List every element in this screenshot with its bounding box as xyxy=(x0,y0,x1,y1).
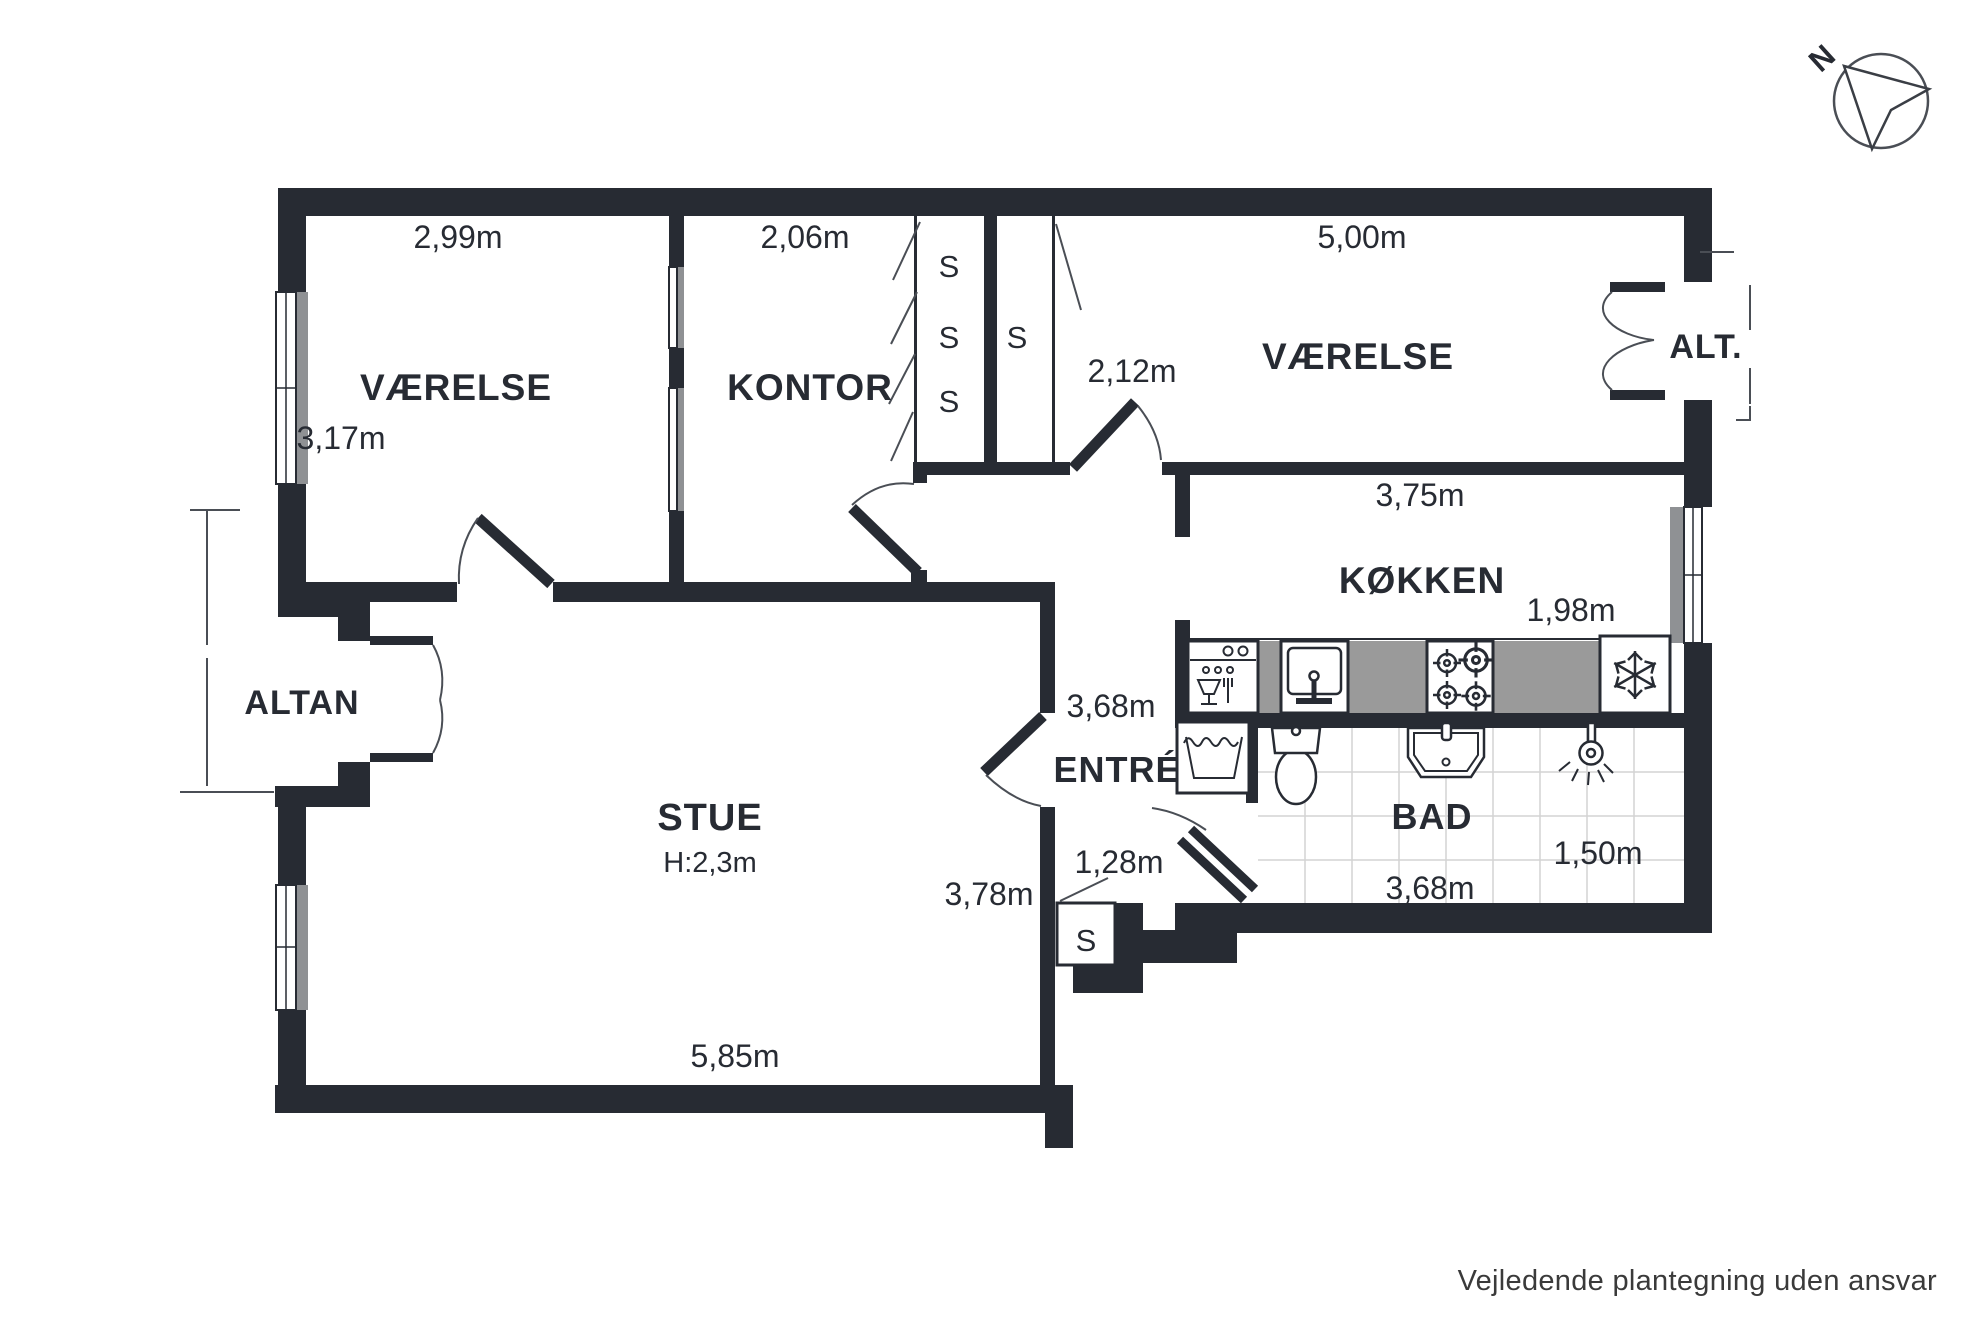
sink-icon xyxy=(1281,641,1348,713)
closet-s-2: S xyxy=(939,320,960,355)
washing-machine-icon xyxy=(1177,722,1249,793)
door-bad xyxy=(1152,808,1255,900)
closet-s-entre: S xyxy=(1076,923,1097,958)
glass-partition-kontor xyxy=(669,267,684,511)
dim-vaerelse-nw-depth: 3,17m xyxy=(297,420,386,456)
dim-koekken-depth: 1,98m xyxy=(1527,592,1616,628)
dim-bad-width: 3,68m xyxy=(1386,870,1475,906)
window-koekken xyxy=(1670,507,1702,643)
dim-stue-depth: 3,78m xyxy=(945,876,1034,912)
room-label-vaerelse-ne: VÆRELSE xyxy=(1262,336,1454,377)
dishwasher-icon xyxy=(1188,641,1258,713)
closet-s-1: S xyxy=(939,249,960,284)
closet-s-3: S xyxy=(939,384,960,419)
door-vaerelse-nw xyxy=(459,518,551,584)
disclaimer-text: Vejledende plantegning uden ansvar xyxy=(1458,1265,1937,1297)
door-vaerelse-ne xyxy=(1073,402,1161,468)
room-label-kontor: KONTOR xyxy=(727,367,893,408)
dim-entre-closet: 1,28m xyxy=(1075,844,1164,880)
closet-s-4: S xyxy=(1007,320,1028,355)
compass-north-label: N xyxy=(1802,38,1842,79)
kitchen-fixtures xyxy=(1188,636,1670,713)
room-label-bad: BAD xyxy=(1392,796,1473,837)
door-kontor xyxy=(852,483,918,572)
room-label-altan: ALTAN xyxy=(244,684,359,722)
room-label-alt: ALT. xyxy=(1669,328,1742,366)
toilet-icon xyxy=(1272,727,1320,804)
room-label-vaerelse-nw: VÆRELSE xyxy=(360,367,552,408)
dim-vaerelse-nw-width: 2,99m xyxy=(414,219,503,255)
bath-sink-icon xyxy=(1408,723,1484,777)
dim-vaerelse-ne-entry: 2,12m xyxy=(1088,353,1177,389)
stove-icon xyxy=(1427,641,1494,713)
room-label-koekken: KØKKEN xyxy=(1339,560,1505,601)
dim-bad-depth: 1,50m xyxy=(1554,835,1643,871)
dim-kontor-width: 2,06m xyxy=(761,219,850,255)
altan-outline xyxy=(180,510,274,792)
fridge-icon xyxy=(1600,636,1670,713)
room-label-entre: ENTRÉ xyxy=(1053,749,1180,790)
shower-icon xyxy=(1559,723,1613,785)
door-stue-entre xyxy=(984,716,1043,806)
french-doors-altan xyxy=(433,645,442,753)
dim-vaerelse-ne-width: 5,00m xyxy=(1318,219,1407,255)
dim-stue-width: 5,85m xyxy=(691,1038,780,1074)
dim-stue-ceiling: H:2,3m xyxy=(663,847,756,879)
compass-icon: N xyxy=(1802,38,1929,149)
dim-koekken-width: 3,75m xyxy=(1376,477,1465,513)
french-doors-alt xyxy=(1603,292,1654,390)
dim-entre-width: 3,68m xyxy=(1067,688,1156,724)
room-label-stue: STUE xyxy=(657,797,762,839)
floor-plan: N 2,99m 3,17m VÆRELSE 2,06m KONTOR S S S… xyxy=(0,0,1984,1323)
window-stue xyxy=(276,885,308,1010)
